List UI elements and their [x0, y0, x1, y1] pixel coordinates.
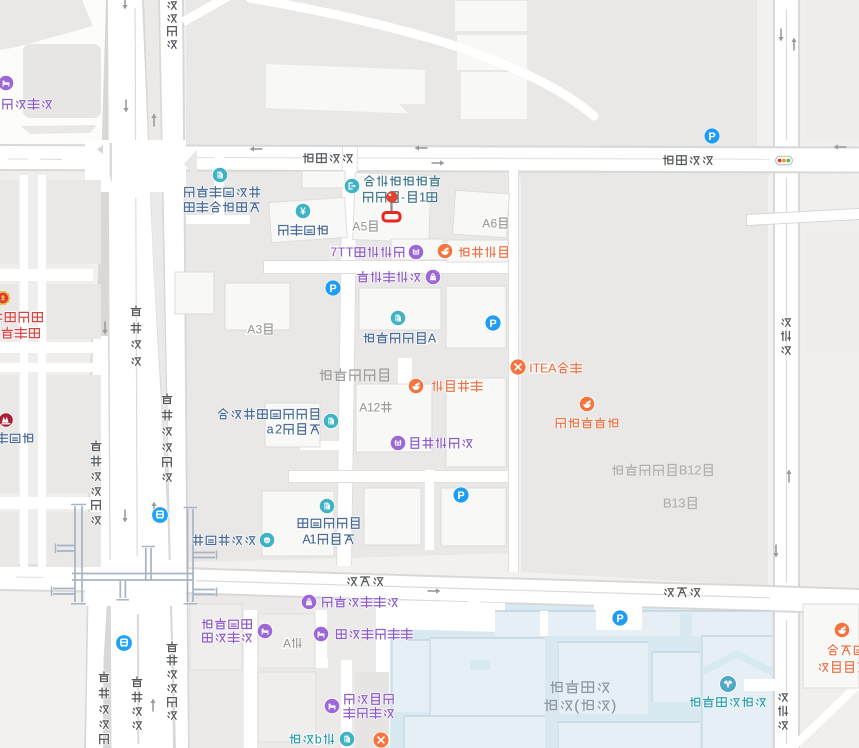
svg-text:P: P [457, 490, 464, 502]
svg-text:A5: A5 [352, 219, 367, 233]
svg-text:B12: B12 [679, 463, 702, 478]
svg-text:P: P [329, 283, 336, 295]
svg-text:-: - [401, 191, 405, 205]
svg-text:1: 1 [419, 191, 426, 205]
svg-text:P: P [489, 318, 496, 330]
svg-text:A6: A6 [482, 216, 497, 230]
svg-text:A: A [428, 332, 437, 346]
svg-text:): ) [611, 697, 616, 714]
svg-text:A1: A1 [302, 533, 316, 547]
svg-text:A12: A12 [359, 400, 380, 414]
svg-text:ITEA: ITEA [529, 362, 557, 376]
svg-text:P: P [708, 131, 715, 143]
svg-text:(: ( [574, 697, 579, 714]
svg-text:A3: A3 [247, 322, 262, 336]
svg-text:a2: a2 [267, 423, 283, 437]
svg-text:7TT: 7TT [330, 246, 354, 260]
svg-text:A: A [283, 636, 291, 650]
svg-text:P: P [616, 613, 623, 625]
svg-text:b: b [315, 733, 322, 747]
svg-text:¥: ¥ [300, 207, 306, 218]
svg-text:B13: B13 [663, 496, 686, 511]
